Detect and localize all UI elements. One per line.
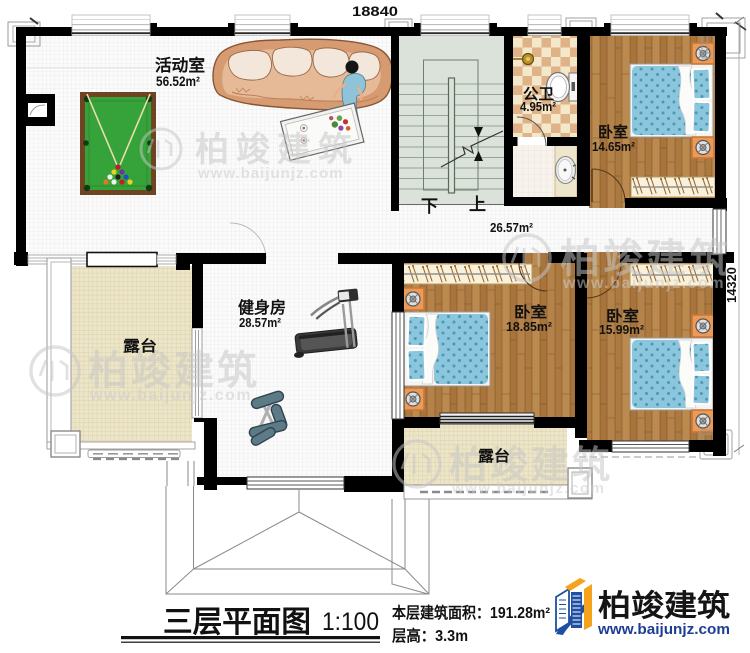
svg-text:健身房: 健身房 [238,298,286,317]
svg-text:三层平面图: 三层平面图 [163,606,311,639]
svg-text:柏竣建筑: 柏竣建筑 [598,589,730,623]
svg-text:层高：3.3m: 层高：3.3m [392,626,468,645]
svg-text:56.52m²: 56.52m² [156,74,200,89]
svg-text:www.baijunjz.com: www.baijunjz.com [451,480,605,497]
svg-text:14.65m²: 14.65m² [592,140,635,154]
svg-text:www.baijunjz.com: www.baijunjz.com [197,165,343,182]
svg-text:15.99m²: 15.99m² [599,323,644,337]
svg-text:1:100: 1:100 [322,608,379,636]
svg-text:柏竣建筑: 柏竣建筑 [195,130,359,169]
svg-text:www.baijunjz.com: www.baijunjz.com [597,622,730,638]
svg-text:14320: 14320 [724,267,739,303]
svg-text:卧室: 卧室 [598,123,628,141]
svg-text:26.57m²: 26.57m² [490,221,533,235]
svg-text:4.95m²: 4.95m² [520,100,556,114]
svg-text:18840: 18840 [352,3,398,19]
svg-text:28.57m²: 28.57m² [239,316,281,330]
svg-text:上: 上 [469,195,486,214]
svg-text:露台: 露台 [478,447,510,465]
svg-text:www.baijunjz.com: www.baijunjz.com [89,387,252,404]
svg-text:活动室: 活动室 [155,55,205,75]
svg-text:下: 下 [421,197,438,216]
svg-text:www.baijunjz.com: www.baijunjz.com [562,275,725,292]
svg-text:卧室: 卧室 [514,303,547,321]
svg-text:18.85m²: 18.85m² [506,320,552,334]
svg-text:露台: 露台 [123,337,157,355]
svg-text:本层建筑面积：191.28m²: 本层建筑面积：191.28m² [392,603,550,622]
